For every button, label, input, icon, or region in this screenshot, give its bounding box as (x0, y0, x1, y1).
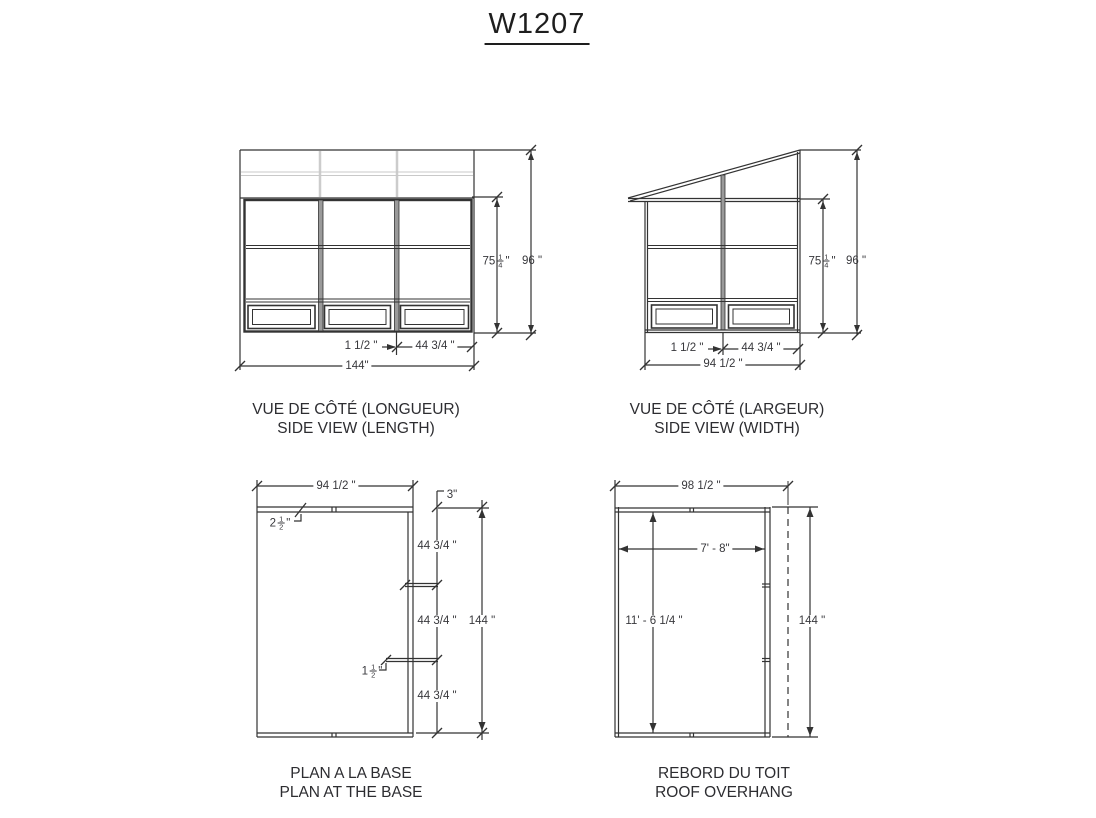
dim-whole: 75 (482, 255, 495, 267)
dim-plan-wall-thickness: 212" (270, 516, 291, 531)
dim-side-length-panel: 44 3/4 " (412, 340, 457, 352)
dim-unit: " (378, 665, 382, 677)
dim-unit: " (286, 517, 290, 529)
dim-fraction: 14 (497, 254, 503, 269)
caption-en: SIDE VIEW (WIDTH) (630, 420, 825, 439)
caption-en: SIDE VIEW (LENGTH) (252, 420, 460, 439)
dim-plan-total-width: 94 1/2 " (313, 480, 358, 492)
caption-fr: VUE DE CÔTÉ (LONGUEUR) (252, 401, 460, 420)
technical-drawing-sheet: W1207 7514" 96 " 1 1/2 " 44 3/4 " 144" V… (0, 0, 1096, 818)
dim-plan-corner: 3" (447, 489, 457, 501)
dim-side-width-inner-height: 7514" (808, 254, 835, 269)
labels-overlay: W1207 7514" 96 " 1 1/2 " 44 3/4 " 144" V… (0, 0, 1096, 818)
dim-plan-mullion: 112" (362, 664, 383, 679)
dim-side-length-total-height: 96 " (522, 255, 542, 267)
dim-whole: 2 (270, 517, 276, 529)
dim-side-width-panel: 44 3/4 " (738, 342, 783, 354)
dim-fraction: 12 (278, 516, 284, 531)
caption-fr: REBORD DU TOIT (655, 765, 793, 784)
dim-side-length-mullion: 1 1/2 " (345, 340, 378, 352)
dim-roof-total-depth: 144 " (796, 615, 828, 627)
dim-roof-inner-width: 7' - 8" (697, 543, 732, 555)
caption-en: PLAN AT THE BASE (279, 784, 422, 803)
dim-whole: 1 (362, 665, 368, 677)
dim-side-length-total-width: 144" (342, 360, 371, 372)
caption-en: ROOF OVERHANG (655, 784, 793, 803)
dim-fraction: 12 (370, 664, 376, 679)
caption-roof-overhang: REBORD DU TOIT ROOF OVERHANG (655, 765, 793, 802)
dim-plan-panel-3: 44 3/4 " (414, 690, 459, 702)
page-title: W1207 (485, 8, 590, 45)
caption-side-width: VUE DE CÔTÉ (LARGEUR) SIDE VIEW (WIDTH) (630, 401, 825, 438)
dim-plan-total-depth: 144 " (466, 615, 498, 627)
dim-whole: 75 (808, 255, 821, 267)
caption-fr: PLAN A LA BASE (279, 765, 422, 784)
dim-side-length-inner-height: 7514" (482, 254, 509, 269)
dim-side-width-total-width: 94 1/2 " (700, 358, 745, 370)
dim-side-width-mullion: 1 1/2 " (671, 342, 704, 354)
dim-plan-panel-2: 44 3/4 " (414, 615, 459, 627)
dim-plan-panel-1: 44 3/4 " (414, 540, 459, 552)
caption-plan-base: PLAN A LA BASE PLAN AT THE BASE (279, 765, 422, 802)
caption-fr: VUE DE CÔTÉ (LARGEUR) (630, 401, 825, 420)
caption-side-length: VUE DE CÔTÉ (LONGUEUR) SIDE VIEW (LENGTH… (252, 401, 460, 438)
dim-unit: " (505, 255, 509, 267)
dim-unit: " (831, 255, 835, 267)
dim-side-width-total-height: 96 " (846, 255, 866, 267)
dim-roof-inner-depth: 11' - 6 1/4 " (622, 615, 685, 627)
dim-fraction: 14 (823, 254, 829, 269)
dim-roof-total-width: 98 1/2 " (678, 480, 723, 492)
